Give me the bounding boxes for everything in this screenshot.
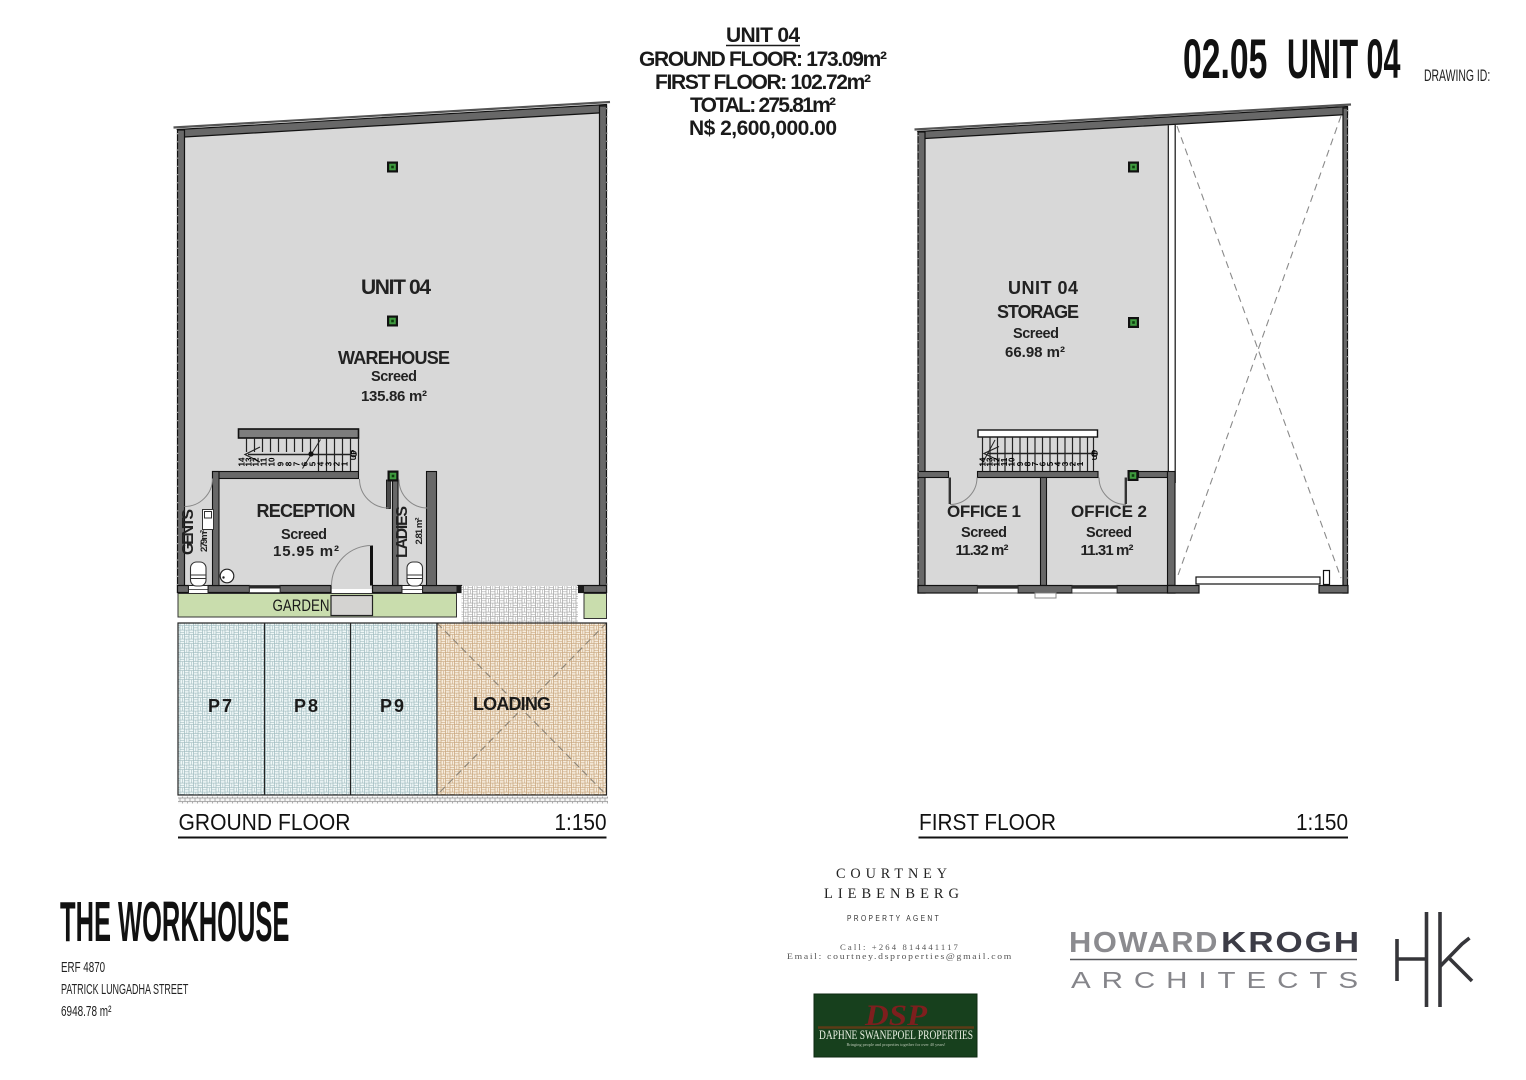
svg-text:2.81 m²: 2.81 m² bbox=[414, 518, 425, 545]
svg-text:UP: UP bbox=[1090, 450, 1099, 460]
svg-text:P9: P9 bbox=[380, 696, 404, 716]
svg-text:PATRICK LUNGADHA STREET: PATRICK LUNGADHA STREET bbox=[61, 980, 188, 997]
svg-text:Screed: Screed bbox=[371, 369, 417, 385]
svg-text:ARCHITECTS: ARCHITECTS bbox=[1071, 967, 1369, 993]
svg-text:02.05: 02.05 bbox=[1183, 28, 1267, 91]
svg-text:ERF 4870: ERF 4870 bbox=[61, 958, 105, 975]
svg-text:PROPERTY AGENT: PROPERTY AGENT bbox=[847, 913, 941, 923]
svg-text:LIEBENBERG: LIEBENBERG bbox=[824, 886, 964, 902]
svg-text:1: 1 bbox=[1076, 461, 1085, 466]
svg-text:HOWARD: HOWARD bbox=[1069, 927, 1219, 959]
svg-text:FIRST FLOOR: FIRST FLOOR bbox=[919, 809, 1056, 835]
svg-text:UNIT 04: UNIT 04 bbox=[726, 24, 800, 47]
svg-text:GROUND FLOOR: 173.09m²: GROUND FLOOR: 173.09m² bbox=[639, 48, 887, 71]
svg-text:THE WORKHOUSE: THE WORKHOUSE bbox=[60, 891, 289, 955]
svg-text:KROGH: KROGH bbox=[1221, 927, 1361, 959]
svg-text:P8: P8 bbox=[294, 696, 318, 716]
svg-text:Email: courtney.dsproperties@g: Email: courtney.dsproperties@gmail.com bbox=[787, 951, 1013, 961]
svg-text:UNIT 04: UNIT 04 bbox=[1008, 278, 1078, 298]
svg-text:UP: UP bbox=[349, 450, 358, 460]
svg-text:2.79 m²: 2.79 m² bbox=[199, 530, 210, 552]
svg-text:1: 1 bbox=[341, 461, 350, 466]
svg-text:STORAGE: STORAGE bbox=[997, 302, 1079, 322]
svg-text:15.95 m²: 15.95 m² bbox=[273, 543, 339, 560]
svg-text:LADIES: LADIES bbox=[394, 506, 411, 558]
svg-text:GENTS: GENTS bbox=[180, 509, 197, 555]
svg-text:Screed: Screed bbox=[281, 527, 327, 543]
svg-text:1:150: 1:150 bbox=[1296, 809, 1348, 835]
svg-text:DRAWING ID:: DRAWING ID: bbox=[1424, 67, 1490, 85]
svg-text:UNIT 04: UNIT 04 bbox=[1287, 28, 1401, 91]
svg-text:Screed: Screed bbox=[961, 525, 1007, 541]
svg-text:6948.78 m²: 6948.78 m² bbox=[61, 1002, 112, 1019]
svg-text:RECEPTION: RECEPTION bbox=[257, 501, 356, 521]
svg-text:UNIT 04: UNIT 04 bbox=[361, 276, 431, 299]
svg-text:N$ 2,600,000.00: N$ 2,600,000.00 bbox=[689, 117, 837, 140]
svg-text:DAPHNE SWANEPOEL PROPERTIES: DAPHNE SWANEPOEL PROPERTIES bbox=[819, 1028, 973, 1042]
svg-text:GARDEN: GARDEN bbox=[273, 597, 330, 615]
svg-text:11.31 m²: 11.31 m² bbox=[1081, 542, 1134, 559]
svg-text:11.32 m²: 11.32 m² bbox=[956, 542, 1009, 559]
svg-text:OFFICE 1: OFFICE 1 bbox=[947, 502, 1021, 521]
svg-text:Screed: Screed bbox=[1013, 326, 1059, 342]
svg-text:Bringing people and properties: Bringing people and properties together … bbox=[847, 1042, 946, 1047]
svg-text:10: 10 bbox=[268, 457, 277, 466]
svg-text:LOADING: LOADING bbox=[473, 694, 551, 714]
svg-text:66.98 m²: 66.98 m² bbox=[1005, 344, 1065, 361]
svg-text:135.86 m²: 135.86 m² bbox=[361, 388, 427, 405]
svg-text:COURTNEY: COURTNEY bbox=[836, 866, 952, 882]
svg-text:GROUND FLOOR: GROUND FLOOR bbox=[179, 809, 351, 835]
svg-text:P7: P7 bbox=[208, 696, 232, 716]
svg-text:FIRST FLOOR: 102.72m²: FIRST FLOOR: 102.72m² bbox=[655, 71, 871, 94]
svg-text:OFFICE 2: OFFICE 2 bbox=[1071, 502, 1147, 521]
svg-text:1:150: 1:150 bbox=[555, 809, 607, 835]
svg-text:TOTAL: 275.81m²: TOTAL: 275.81m² bbox=[690, 94, 836, 117]
svg-text:WAREHOUSE: WAREHOUSE bbox=[338, 348, 450, 368]
svg-text:Screed: Screed bbox=[1086, 525, 1132, 541]
